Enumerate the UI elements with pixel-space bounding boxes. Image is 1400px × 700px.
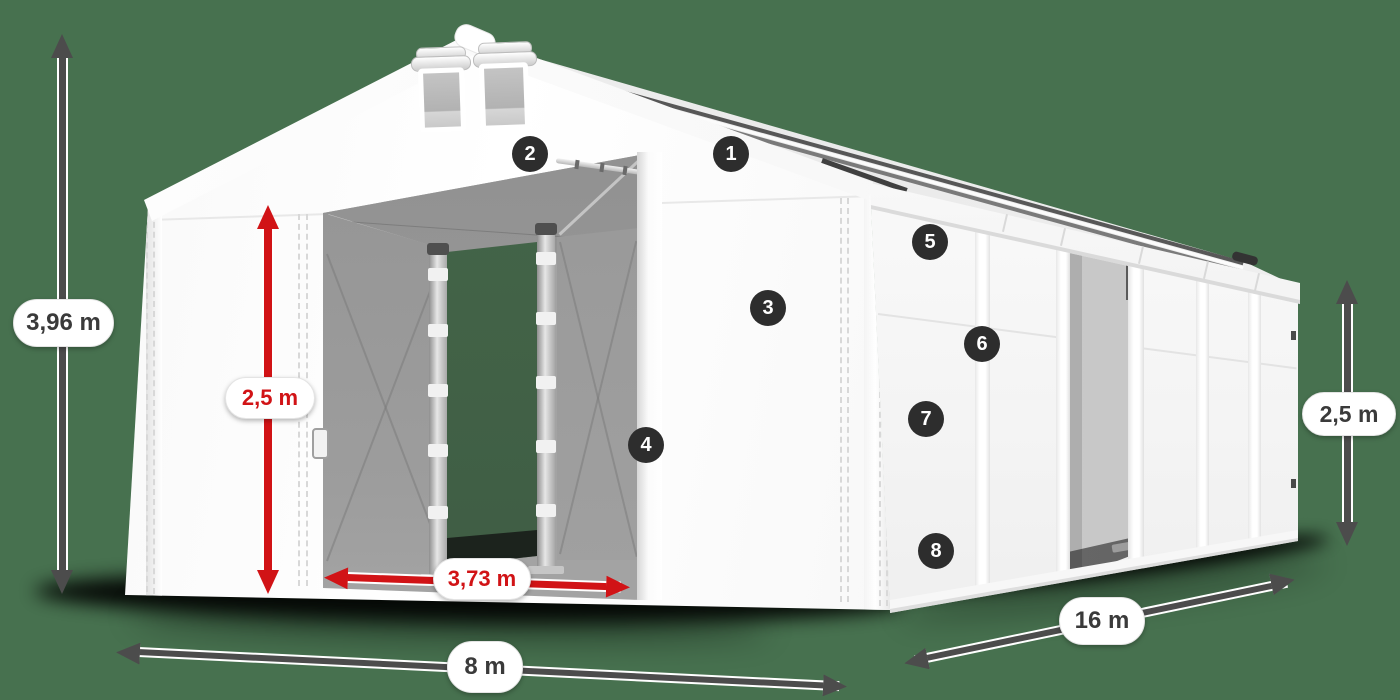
- pole-right-band-2: [536, 312, 556, 325]
- feature-marker-8-label: 8: [930, 540, 941, 563]
- seam-dashed-left-1: [146, 212, 148, 592]
- door-width-value: 3,73 m: [448, 566, 517, 592]
- side-length-value: 16 m: [1075, 607, 1130, 635]
- corner-buckle-2: [1291, 479, 1296, 488]
- vent-mesh-left: [423, 72, 461, 127]
- side-height-arrowhead-down: [1336, 522, 1358, 546]
- feature-marker-3: 3: [750, 290, 786, 326]
- feature-marker-5-label: 5: [924, 231, 935, 254]
- door-height-dimension-pill: 2,5 m: [225, 377, 315, 419]
- pole-left-band-2: [428, 324, 448, 337]
- feature-marker-7: 7: [908, 401, 944, 437]
- pole-left-band-4: [428, 444, 448, 457]
- feature-marker-1-label: 1: [725, 143, 736, 166]
- pole-left-band-5: [428, 506, 448, 519]
- pole-right-band-3: [536, 376, 556, 389]
- pole-right-band-1: [536, 252, 556, 265]
- tent-dimension-diagram: 1 2 3 4 5 6 7 8 3,96 m 2,5 m 3,73 m 8 m …: [0, 0, 1400, 700]
- feature-marker-6-label: 6: [976, 333, 987, 356]
- side-length-dimension-pill: 16 m: [1059, 597, 1145, 645]
- front-width-arrowhead-right: [822, 674, 847, 697]
- seam-dashed-left-2: [153, 212, 155, 594]
- feature-marker-4: 4: [628, 427, 664, 463]
- front-width-dimension-pill: 8 m: [447, 641, 523, 693]
- vent-window-right: [479, 62, 530, 131]
- side-length-arrowhead-left: [902, 648, 930, 674]
- total-height-value: 3,96 m: [26, 309, 101, 337]
- pole-right-band-4: [536, 440, 556, 453]
- seam-dashed-right-1: [840, 198, 842, 602]
- side-wall-seam-band-5: [1248, 276, 1261, 548]
- pole-left-band-3: [428, 384, 448, 397]
- pole-left-top-joint: [427, 243, 449, 255]
- door-width-dimension-pill: 3,73 m: [433, 558, 531, 600]
- seam-dashed-right-2: [847, 198, 849, 602]
- side-wall-seam-band-4: [1196, 264, 1209, 558]
- inner-door-pole-left: [429, 246, 447, 580]
- vent-window-left: [418, 67, 466, 133]
- vent-mesh-right: [484, 67, 525, 125]
- feature-marker-2-label: 2: [524, 143, 535, 166]
- side-height-dimension-pill: 2,5 m: [1302, 392, 1396, 436]
- door-handle: [312, 428, 329, 459]
- corner-buckle-1: [1291, 331, 1296, 340]
- feature-marker-2: 2: [512, 136, 548, 172]
- feature-marker-8: 8: [918, 533, 954, 569]
- front-width-arrowhead-left: [115, 641, 140, 664]
- feature-marker-1: 1: [713, 136, 749, 172]
- feature-marker-6: 6: [964, 326, 1000, 362]
- front-width-value: 8 m: [464, 653, 505, 681]
- feature-marker-7-label: 7: [920, 408, 931, 431]
- open-door-panel-edge: [637, 152, 662, 600]
- feature-marker-5: 5: [912, 224, 948, 260]
- side-wall-seam-band-3: [1128, 248, 1144, 570]
- pole-left-band-1: [428, 268, 448, 281]
- total-height-dimension-pill: 3,96 m: [13, 299, 114, 347]
- side-height-arrowhead-up: [1336, 280, 1358, 304]
- pole-right-top-joint: [535, 223, 557, 235]
- side-height-value: 2,5 m: [1320, 401, 1379, 428]
- pole-right-band-5: [536, 504, 556, 517]
- inner-door-pole-right: [537, 226, 555, 572]
- feature-marker-4-label: 4: [640, 434, 651, 457]
- feature-marker-3-label: 3: [762, 297, 773, 320]
- side-wall-seam-band-2: [1056, 228, 1070, 584]
- pole-right-foot-plate: [528, 566, 564, 574]
- door-height-value: 2,5 m: [242, 385, 298, 411]
- side-wall-seam-band-1: [975, 213, 990, 597]
- total-height-arrowhead-up: [51, 34, 73, 58]
